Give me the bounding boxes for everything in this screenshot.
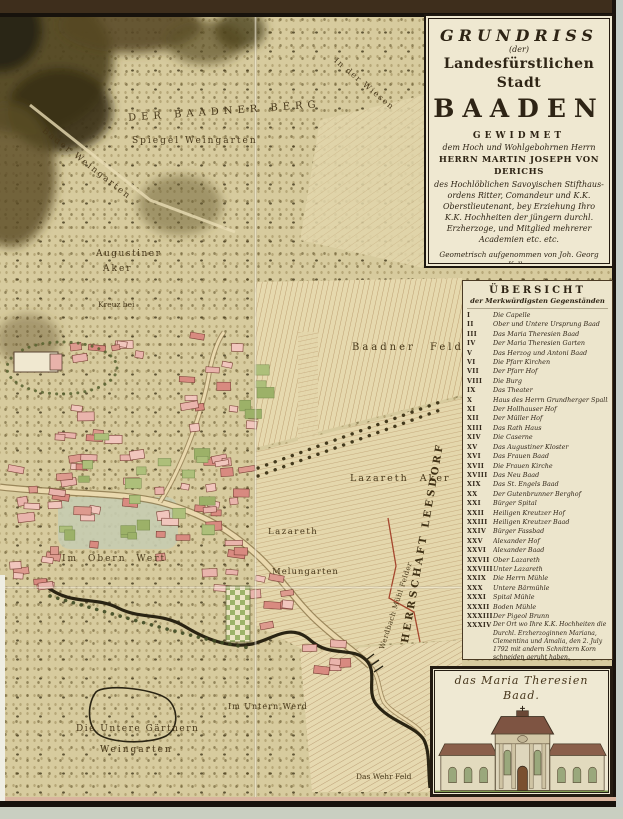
- legend-title: ÜBERSICHT: [467, 284, 608, 297]
- legend-item-label: Der Pigeol Brunn: [493, 612, 608, 621]
- legend-item: XXDer Gutenbrunner Berghof: [467, 490, 608, 499]
- legend-item: XVIDas Frauen Baad: [467, 452, 608, 461]
- legend-item-label: Das St. Engels Baad: [493, 480, 608, 489]
- legend-item: XIXDas St. Engels Baad: [467, 480, 608, 489]
- map-label-im-obern-wert: Im Obern Wert: [62, 554, 166, 564]
- legend-item-numeral: XXXI: [467, 593, 493, 602]
- map-title: GRUNDRISS: [432, 27, 606, 45]
- legend-item: XXVIIOber Lazareth: [467, 556, 608, 565]
- legend-item-label: Das Theater: [493, 386, 608, 395]
- legend-item-numeral: XXVII: [467, 556, 493, 565]
- legend-item-numeral: IV: [467, 339, 493, 348]
- legend-item-label: Untere Bärmühle: [493, 584, 608, 593]
- legend-item-label: Bürger Fassbad: [493, 527, 608, 536]
- legend-item: IXDas Theater: [467, 386, 608, 395]
- legend-item-label: Der Maria Theresien Garten: [493, 339, 608, 348]
- legend-item: XXIBürger Spital: [467, 499, 608, 508]
- legend-item-numeral: XXV: [467, 537, 493, 546]
- legend-item-label: Das Maria Theresien Baad: [493, 330, 608, 339]
- dedication-line: ordens Ritter, Comandeur und K.K.: [432, 190, 606, 201]
- legend-item: XVIIIDas Neu Baad: [467, 471, 608, 480]
- legend-item-numeral: XVII: [467, 462, 493, 471]
- legend-item-label: Boden Mühle: [493, 603, 608, 612]
- map-label-melungarten: Melungarten: [272, 567, 339, 577]
- legend-item-label: Der Hollhauser Hof: [493, 405, 608, 414]
- inset-title: das Maria Theresien Baad.: [435, 673, 608, 703]
- paper-left-strip: [0, 575, 5, 801]
- legend-item-label: Die Burg: [493, 377, 608, 386]
- dedication-line: Oberstlieutenant, bey Erziehung Ihro: [432, 201, 606, 212]
- legend-item: XXVAlexander Hof: [467, 537, 608, 546]
- legend-item-numeral: XXVI: [467, 546, 493, 555]
- legend-item: XIIIDas Rath Haus: [467, 424, 608, 433]
- legend-item: IIIDas Maria Theresien Baad: [467, 330, 608, 339]
- legend-box: ÜBERSICHT der Merkwürdigsten Gegenstände…: [462, 280, 613, 660]
- paper-bottom-margin: [0, 807, 623, 819]
- legend-item-label: Heiligen Kreutzer Hof: [493, 509, 608, 518]
- legend-item: XXXIVDer Ort wo Ihre K.K. Hochheiten die…: [467, 621, 608, 660]
- surveyor-lines: Geometrisch aufgenommen von Joh. Georg K…: [432, 250, 606, 264]
- dedication-line: Academien etc. etc.: [432, 234, 606, 245]
- legend-item: XXIXDie Herrn Mühle: [467, 574, 608, 583]
- legend-item: VIIIDie Burg: [467, 377, 608, 386]
- tree-row: [50, 596, 250, 648]
- legend-item-label: Der Ort wo Ihre K.K. Hochheiten die Durc…: [493, 621, 608, 660]
- maria-theresien-baad-illustration: [435, 703, 609, 793]
- legend-item-numeral: XXXIII: [467, 612, 493, 621]
- inset-inner: das Maria Theresien Baad.: [434, 670, 609, 793]
- legend-item: VIDie Pfarr Kirchen: [467, 358, 608, 367]
- legend-item: IDie Capelle: [467, 311, 608, 320]
- legend-item-label: Heiligen Kreutzer Baad: [493, 518, 608, 527]
- legend-item-numeral: XVI: [467, 452, 493, 461]
- legend-item-numeral: XXX: [467, 584, 493, 593]
- legend-item-numeral: IX: [467, 386, 493, 395]
- legend-item-label: Die Pfarr Kirchen: [493, 358, 608, 367]
- dedication-line: des Hochlöblichen Savoyischen Stifthaus-: [432, 179, 606, 190]
- dedication-line: K.K. Hochheiten der jüngern durchl.: [432, 212, 606, 223]
- legend-item-numeral: XXIII: [467, 518, 493, 527]
- legend-item: XXIVBürger Fassbad: [467, 527, 608, 536]
- inset-box: das Maria Theresien Baad.: [430, 666, 613, 797]
- legend-item-label: Ober und Untere Ursprung Baad: [493, 320, 608, 329]
- legend-item-numeral: XIX: [467, 480, 493, 489]
- legend-item-label: Der Müller Hof: [493, 414, 608, 423]
- hills: [0, 0, 265, 366]
- legend-item-numeral: XXII: [467, 509, 493, 518]
- legend-item-numeral: III: [467, 330, 493, 339]
- dedication-sub: dem Hoch und Wohlgebohrnen Herrn: [432, 142, 606, 153]
- field-top-center: [300, 95, 424, 268]
- legend-item-label: Bürger Spital: [493, 499, 608, 508]
- legend-item: XXIIHeiligen Kreutzer Hof: [467, 509, 608, 518]
- map-city-name: BAADEN: [432, 94, 606, 124]
- legend-item-numeral: XXIV: [467, 527, 493, 536]
- legend-item-numeral: XIII: [467, 424, 493, 433]
- map-label-die-untere-gaertnern: Die Untere Gärtnern: [76, 724, 199, 734]
- legend-item-numeral: VIII: [467, 377, 493, 386]
- map-label-im-untern-werd: Im Untern Werd: [228, 702, 308, 711]
- legend-item-numeral: XXXII: [467, 603, 493, 612]
- legend-item-numeral: XXIX: [467, 574, 493, 583]
- legend-item-numeral: XX: [467, 490, 493, 499]
- map-label-baadner-feld: Baadner Feld: [352, 342, 464, 353]
- legend-item-label: Das Frauen Baad: [493, 452, 608, 461]
- legend-item-label: Der Pfarr Hof: [493, 367, 608, 376]
- map-label-das-wehr-feld: Das Wehr Feld: [356, 772, 412, 781]
- legend-item: XVIIDie Frauen Kirche: [467, 462, 608, 471]
- legend-item: XXVIAlexander Baad: [467, 546, 608, 555]
- surveyor-line: Geometrisch aufgenommen von Joh. Georg K…: [432, 250, 606, 264]
- legend-item-label: Das Augustiner Kloster: [493, 443, 608, 452]
- legend-item-numeral: II: [467, 320, 493, 329]
- legend-item-numeral: I: [467, 311, 493, 320]
- legend-item: XIVDie Caserne: [467, 433, 608, 442]
- dedication-heading: GEWIDMET: [432, 130, 606, 142]
- legend-item-label: Alexander Hof: [493, 537, 608, 546]
- legend-item-label: Alexander Baad: [493, 546, 608, 555]
- legend-item-numeral: XIV: [467, 433, 493, 442]
- legend-item-label: Das Herzog und Antoni Baad: [493, 349, 608, 358]
- legend-item-numeral: XXI: [467, 499, 493, 508]
- legend-item: XXXISpital Mühle: [467, 593, 608, 602]
- legend-item-label: Die Caserne: [493, 433, 608, 442]
- dedicatee-name: HERRN MARTIN JOSEPH VON DERICHS: [432, 154, 606, 178]
- map-subtitle: Landesfürstlichen Stadt: [432, 55, 606, 93]
- legend-item-numeral: XXVIII: [467, 565, 493, 574]
- legend-item: VIIDer Pfarr Hof: [467, 367, 608, 376]
- legend-item-label: Die Capelle: [493, 311, 608, 320]
- legend-item-numeral: XI: [467, 405, 493, 414]
- map-sheet: DER BAADNER BERG Spiegel Weingarten Bade…: [0, 0, 623, 819]
- legend-item-label: Das Neu Baad: [493, 471, 608, 480]
- legend-item-numeral: XXXIV: [467, 621, 493, 630]
- legend-item: IIOber und Untere Ursprung Baad: [467, 320, 608, 329]
- legend-list: IDie CapelleIIOber und Untere Ursprung B…: [467, 311, 608, 660]
- dedication-lines: des Hochlöblichen Savoyischen Stifthaus-…: [432, 179, 606, 245]
- dedication-line: Erzherzoge, und Mitglied mehrerer: [432, 223, 606, 234]
- map-label-spiegel-weingarten: Spiegel Weingarten: [132, 136, 258, 146]
- legend-item-label: Das Rath Haus: [493, 424, 608, 433]
- legend-item: XIIDer Müller Hof: [467, 414, 608, 423]
- legend-item: XIDer Hollhauser Hof: [467, 405, 608, 414]
- legend-item: XHaus des Herrn Grundherger Spallier: [467, 396, 608, 405]
- legend-item-numeral: XV: [467, 443, 493, 452]
- legend-item-label: Spital Mühle: [493, 593, 608, 602]
- checker-garden: [226, 586, 250, 642]
- legend-item: XXVIIIUnter Lazareth: [467, 565, 608, 574]
- legend-item-label: Die Frauen Kirche: [493, 462, 608, 471]
- legend-item-label: Ober Lazareth: [493, 556, 608, 565]
- legend-item-numeral: VII: [467, 367, 493, 376]
- legend-item: XVDas Augustiner Kloster: [467, 443, 608, 452]
- map-label-weingarten: Weingarten: [100, 745, 173, 755]
- map-title-der: (der): [432, 45, 606, 55]
- legend-item-label: Der Gutenbrunner Berghof: [493, 490, 608, 499]
- legend-subtitle: der Merkwürdigsten Gegenständen: [467, 297, 608, 309]
- title-cartouche-inner: GRUNDRISS (der) Landesfürstlichen Stadt …: [428, 18, 610, 264]
- legend-item: XXXIIIDer Pigeol Brunn: [467, 612, 608, 621]
- map-label-aker: Aker: [103, 264, 133, 274]
- legend-item: IVDer Maria Theresien Garten: [467, 339, 608, 348]
- map-label-kreuz-bei: Kreuz bei: [98, 300, 134, 309]
- map-label-augustiner: Augustiner: [96, 249, 161, 259]
- legend-item: VDas Herzog und Antoni Baad: [467, 349, 608, 358]
- title-cartouche: GRUNDRISS (der) Landesfürstlichen Stadt …: [424, 14, 614, 268]
- map-label-lazareth: Lazareth: [268, 527, 318, 537]
- legend-item: XXXIIBoden Mühle: [467, 603, 608, 612]
- legend-item-label: Haus des Herrn Grundherger Spallier: [493, 396, 608, 405]
- legend-item-numeral: VI: [467, 358, 493, 367]
- legend-item-numeral: XVIII: [467, 471, 493, 480]
- sheet-top-band: [0, 0, 616, 13]
- fold-crease-vertical: [254, 0, 257, 801]
- legend-item-label: Unter Lazareth: [493, 565, 608, 574]
- legend-item-numeral: X: [467, 396, 493, 405]
- legend-item-numeral: XII: [467, 414, 493, 423]
- legend-item-label: Die Herrn Mühle: [493, 574, 608, 583]
- legend-item: XXXUntere Bärmühle: [467, 584, 608, 593]
- legend-item-numeral: V: [467, 349, 493, 358]
- legend-item: XXIIIHeiligen Kreutzer Baad: [467, 518, 608, 527]
